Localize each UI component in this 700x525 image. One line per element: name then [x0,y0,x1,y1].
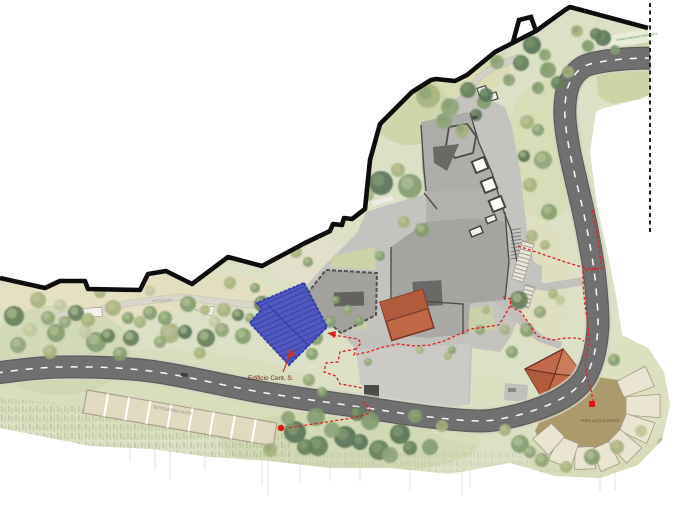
svg-text:Edificio Cent. S.: Edificio Cent. S. [248,375,294,382]
svg-text:POSTI AUTO SCOPERTI: POSTI AUTO SCOPERTI [581,419,620,423]
